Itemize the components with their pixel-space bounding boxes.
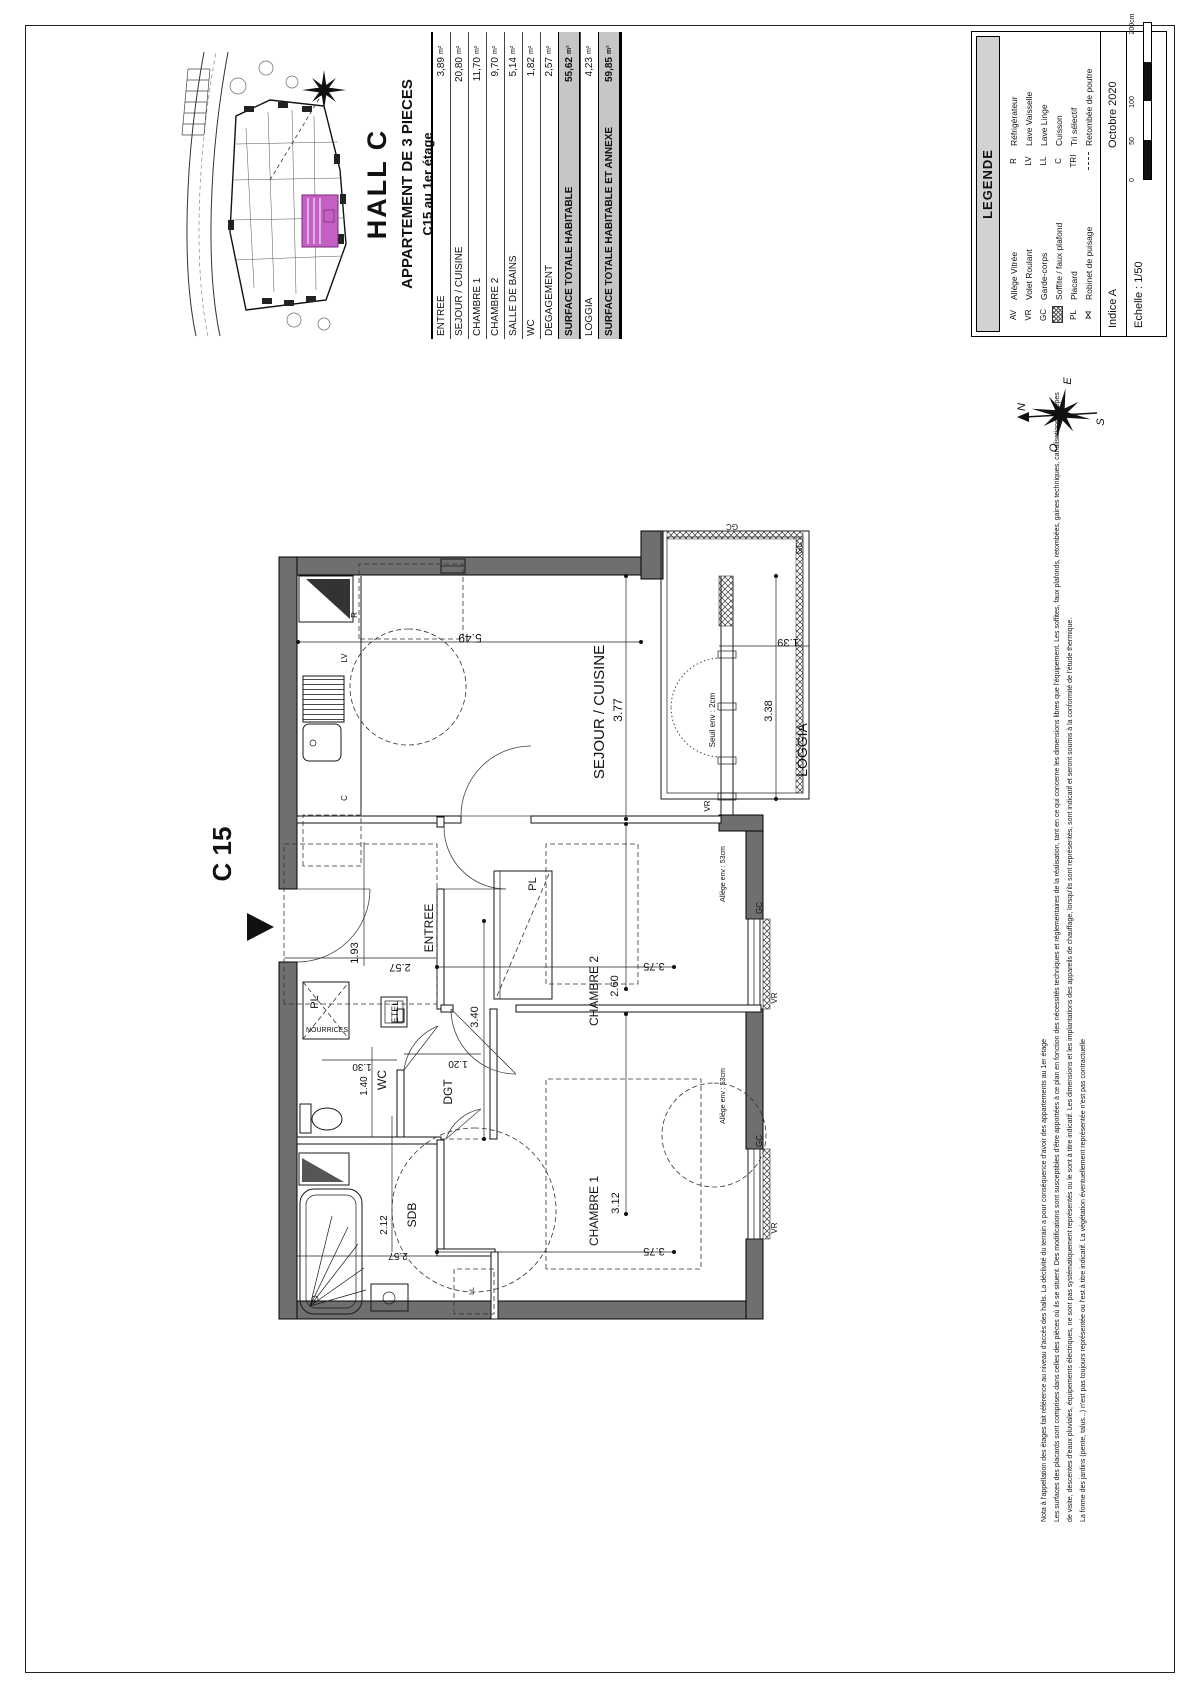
legend-abbr: ⋈	[1083, 300, 1094, 330]
plan-label: GC	[755, 902, 764, 914]
plan-label: 1.30	[352, 1061, 372, 1072]
exterior-walls	[279, 531, 763, 1319]
legend-label: Volet Roulant	[1024, 190, 1034, 300]
table-row: SURFACE TOTALE HABITABLE55,62m²	[558, 32, 580, 339]
table-row: SURFACE TOTALE HABITABLE ET ANNEXE59,85m…	[598, 32, 620, 339]
legend-label: Lave Linge	[1039, 36, 1049, 146]
plan-label: NOURRICES	[306, 1027, 348, 1034]
legend-item: CCuisson	[1051, 36, 1066, 176]
plan-label: PL	[309, 995, 321, 1008]
room-area: 1,82	[526, 57, 537, 99]
legend-label: Allège Vitrée	[1009, 190, 1019, 300]
area-unit: m²	[510, 32, 517, 57]
site-plan	[174, 48, 360, 340]
floor-plan: C 15SEJOUR / CUISINE3.775.49LOGGIA3.381.…	[186, 452, 846, 1332]
legend-label: Lave Vaisselle	[1024, 36, 1034, 146]
legend-abbr: TRI	[1069, 146, 1078, 176]
glazed-bay	[671, 576, 736, 815]
scale-segment	[1144, 62, 1151, 101]
room-area: 55,62	[564, 57, 575, 99]
legend-abbr: GC	[1039, 300, 1048, 330]
plan-label: VR	[770, 1222, 779, 1233]
plan-label: 2.12	[379, 1215, 390, 1235]
plan-label: Seuil env : 2cm	[708, 692, 717, 747]
legend-block: LEGENDE AVAllège VitréeVRVolet RoulantGC…	[971, 31, 1167, 337]
building-mass	[228, 100, 346, 310]
legend-abbr: LL	[1039, 146, 1048, 176]
room-area: 4,23	[584, 57, 595, 99]
plan-label: 1.93	[349, 942, 361, 963]
legend-left-column: AVAllège VitréeVRVolet RoulantGCGarde-co…	[1006, 190, 1096, 330]
plan-label: 1.39	[777, 636, 798, 648]
plan-label: 3.75	[643, 1245, 664, 1257]
dashed-line-icon	[1088, 152, 1089, 170]
nota-line: Nota à l'appellation des étages fait réf…	[1038, 330, 1051, 1522]
legend-item: TRITri sélectif	[1066, 36, 1081, 176]
legend-abbr: VR	[1024, 300, 1033, 330]
legend-item: ⋈Robinet de puisage	[1081, 190, 1096, 330]
scale-segment	[1144, 140, 1151, 179]
legend-item: PLPlacard	[1066, 190, 1081, 330]
legend-abbr	[1084, 146, 1093, 176]
room-label: SURFACE TOTALE HABITABLE	[563, 99, 576, 339]
plan-label: DGT	[441, 1079, 455, 1105]
legend-abbr: C	[1054, 146, 1063, 176]
room-area: 59,85	[604, 57, 615, 99]
apartment-type: APPARTEMENT DE 3 PIECES	[399, 31, 416, 337]
area-unit: m²	[474, 32, 481, 57]
meta-row-indice: Indice A Octobre 2020	[1100, 32, 1127, 336]
meta-row-scale: Echelle : 1/50 050100200cm	[1126, 32, 1166, 336]
wc-fixture	[300, 1104, 342, 1133]
plan-label: C 15	[207, 827, 237, 882]
plan-label: 2.57	[389, 961, 410, 973]
legend-item: Soffite / faux plafond	[1051, 190, 1066, 330]
nota-line: de visite, descentes d'eaux pluviales, é…	[1064, 330, 1077, 1522]
legend-label: Robinet de puisage	[1084, 190, 1094, 300]
table-row: LOGGIA4,23m²	[580, 32, 598, 339]
legend-item: VRVolet Roulant	[1021, 190, 1036, 330]
legend-abbr: R	[1009, 146, 1018, 176]
plan-label: 3.12	[610, 1192, 622, 1213]
plan-label: 3.40	[469, 1006, 481, 1027]
legend-label: Cuisson	[1054, 36, 1064, 146]
scale-segment	[1144, 101, 1151, 140]
plan-label: 3.77	[611, 698, 625, 722]
plan-label: CHAMBRE 1	[587, 1176, 601, 1246]
legend-label: Garde-corps	[1039, 190, 1049, 300]
furniture-dashed	[350, 629, 766, 1292]
drawing-sheet: C 15SEJOUR / CUISINE3.775.49LOGGIA3.381.…	[25, 25, 1175, 1673]
legend-item: RRéfrigérateur	[1006, 36, 1021, 176]
plan-label: 5.49	[458, 631, 482, 645]
hatch-icon	[1052, 307, 1063, 324]
plan-label: VR	[703, 800, 712, 811]
plan-label: ENTREE	[422, 904, 436, 953]
compass-n: N	[1016, 403, 1028, 411]
floorplan-page: { "sheet": { "hall": "HALL C", "apartmen…	[0, 0, 1200, 1698]
plan-label: LL	[469, 1287, 476, 1295]
room-label: DEGAGEMENT	[543, 99, 556, 339]
plan-label: PL	[527, 877, 539, 890]
legend-item: Retombée de poutre	[1081, 36, 1096, 176]
plan-label: Allège env : 53cm	[720, 1068, 727, 1124]
table-row: SEJOUR / CUISINE20,80m²	[450, 32, 468, 339]
plan-label: 3.38	[763, 700, 775, 721]
legend-label: Réfrigérateur	[1009, 36, 1019, 146]
nota-line: La forme des jardins (pente, talus...) n…	[1077, 330, 1090, 1522]
scale-segment	[1144, 23, 1151, 62]
plan-label: LOGGIA	[794, 722, 810, 776]
plan-label: LV	[340, 653, 349, 663]
bathroom	[299, 1153, 494, 1314]
plan-label: 1.40	[359, 1076, 370, 1096]
room-area: 20,80	[454, 57, 465, 99]
legend-label: Soffite / faux plafond	[1054, 190, 1064, 300]
compass-s: S	[1095, 418, 1107, 426]
area-unit: m²	[566, 32, 573, 57]
area-unit: m²	[492, 32, 499, 57]
area-unit: m²	[546, 32, 553, 57]
dimension-lines	[284, 574, 809, 1256]
legend-item: GCGarde-corps	[1036, 190, 1051, 330]
area-unit: m²	[456, 32, 463, 57]
plan-label: GC	[795, 542, 804, 554]
room-label: LOGGIA	[583, 99, 596, 339]
plan-label: C	[340, 795, 349, 801]
room-area: 9,70	[490, 57, 501, 99]
entree-zone	[284, 844, 437, 1004]
scale-tick: 200cm	[1129, 13, 1136, 34]
area-unit: m²	[528, 32, 535, 57]
legend-label: Tri sélectif	[1069, 36, 1079, 146]
area-unit: m²	[438, 32, 445, 57]
legend-item: AVAllège Vitrée	[1006, 190, 1021, 330]
plan-label: 2.57	[388, 1250, 408, 1261]
plan-label: R	[350, 612, 359, 618]
placards	[303, 871, 552, 1039]
room-label: CHAMBRE 2	[489, 99, 502, 339]
plan-label: CHAMBRE 2	[587, 956, 601, 1026]
legend-item: LVLave Vaisselle	[1021, 36, 1036, 176]
scale-tick: 100	[1129, 96, 1136, 108]
plan-title: HALL C APPARTEMENT DE 3 PIECES C15 au 1e…	[362, 31, 435, 337]
room-label: SURFACE TOTALE HABITABLE ET ANNEXE	[603, 99, 616, 339]
plan-label: SDB	[405, 1203, 419, 1228]
room-label: SEJOUR / CUISINE	[453, 99, 466, 339]
tap-icon: ⋈	[1083, 311, 1093, 320]
legend-right-column: RRéfrigérateurLVLave VaisselleLLLave Lin…	[1006, 36, 1096, 176]
legend-label: Retombée de poutre	[1084, 36, 1094, 146]
plan-label: 2.60	[609, 975, 621, 996]
nota-text: Nota à l'appellation des étages fait réf…	[1038, 330, 1090, 1522]
nota-line: Les surfaces des placards sont comprises…	[1051, 330, 1064, 1522]
room-area: 5,14	[508, 57, 519, 99]
area-unit: m²	[586, 32, 593, 57]
hall-title: HALL C	[362, 31, 393, 337]
legend-title: LEGENDE	[976, 36, 1000, 332]
legend-item: LLLave Linge	[1036, 36, 1051, 176]
unit-arrow	[247, 913, 274, 941]
room-area: 2,57	[544, 57, 555, 99]
areas-table: ENTREE3,89m²SEJOUR / CUISINE20,80m²CHAMB…	[431, 32, 622, 339]
plan-label: WC	[375, 1070, 389, 1090]
table-row: WC1,82m²	[522, 32, 540, 339]
window-chambre1	[748, 1149, 770, 1239]
room-area: 11,70	[472, 57, 483, 99]
table-row: ENTREE3,89m²	[433, 32, 450, 339]
plan-label: GC	[755, 1135, 764, 1147]
plan-label: GC	[726, 522, 738, 531]
loggia	[661, 531, 809, 799]
legend-abbr: AV	[1009, 300, 1018, 330]
indice: Indice A	[1101, 208, 1127, 336]
plan-label: Allège env : 53cm	[720, 846, 727, 902]
plan-label: ETEL	[390, 1001, 400, 1024]
scale-bar	[1143, 22, 1152, 180]
scale-text: Echelle : 1/50	[1127, 208, 1166, 336]
legend-abbr	[1052, 300, 1065, 330]
plan-label: 1.20	[448, 1058, 468, 1069]
scale-tick: 50	[1129, 137, 1136, 145]
date: Octobre 2020	[1101, 32, 1127, 208]
plan-label: SEJOUR / CUISINE	[591, 645, 608, 779]
room-label: WC	[525, 99, 538, 339]
legend-label: Placard	[1069, 190, 1079, 300]
plan-label: VR	[770, 992, 779, 1003]
table-row: CHAMBRE 111,70m²	[468, 32, 486, 339]
parking-strip	[182, 69, 210, 135]
table-row: DEGAGEMENT2,57m²	[540, 32, 558, 339]
table-row: CHAMBRE 29,70m²	[486, 32, 504, 339]
table-row: SALLE DE BAINS5,14m²	[504, 32, 522, 339]
plan-label: 3.75	[643, 960, 664, 972]
window-chambre2	[748, 919, 770, 1009]
room-area: 3,89	[436, 57, 447, 99]
legend-abbr: LV	[1024, 146, 1033, 176]
room-label: SALLE DE BAINS	[507, 99, 520, 339]
scale-tick: 0	[1129, 178, 1136, 182]
scale-bar-area: 050100200cm	[1127, 32, 1166, 208]
area-unit: m²	[606, 32, 613, 57]
legend-abbr: PL	[1069, 300, 1078, 330]
room-label: CHAMBRE 1	[471, 99, 484, 339]
room-label: ENTREE	[435, 99, 448, 339]
